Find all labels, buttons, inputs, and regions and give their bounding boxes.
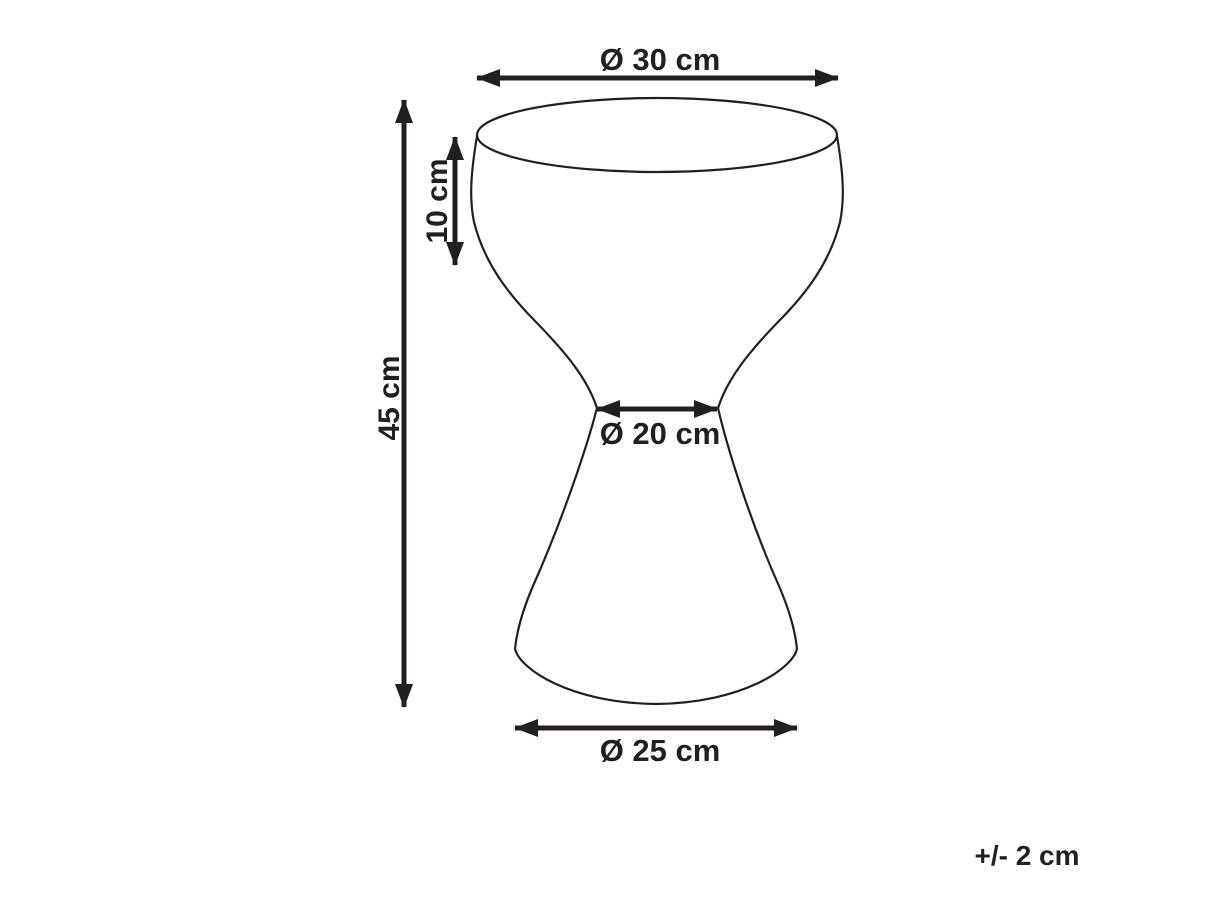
bowl-depth-label: 10 cm <box>421 158 454 243</box>
dimension-base-diameter: Ø 25 cm <box>515 728 797 768</box>
base-diameter-label: Ø 25 cm <box>600 733 721 768</box>
dimension-top-diameter: Ø 30 cm <box>477 42 838 78</box>
table-top-rim <box>477 98 837 172</box>
tolerance-note: +/- 2 cm <box>974 840 1079 871</box>
dimension-overall-height: 45 cm <box>373 100 406 707</box>
table-outline <box>471 98 843 704</box>
overall-height-label: 45 cm <box>373 355 406 440</box>
top-diameter-label: Ø 30 cm <box>600 42 721 77</box>
dimension-waist-diameter: Ø 20 cm <box>597 409 720 451</box>
dimension-bowl-depth: 10 cm <box>421 137 455 265</box>
furniture-dimension-diagram: Ø 30 cm 45 cm 10 cm Ø 20 cm Ø 25 cm +/- … <box>0 0 1214 910</box>
waist-diameter-label: Ø 20 cm <box>600 416 721 451</box>
dimension-drawing-page: Ø 30 cm 45 cm 10 cm Ø 20 cm Ø 25 cm +/- … <box>0 0 1214 910</box>
